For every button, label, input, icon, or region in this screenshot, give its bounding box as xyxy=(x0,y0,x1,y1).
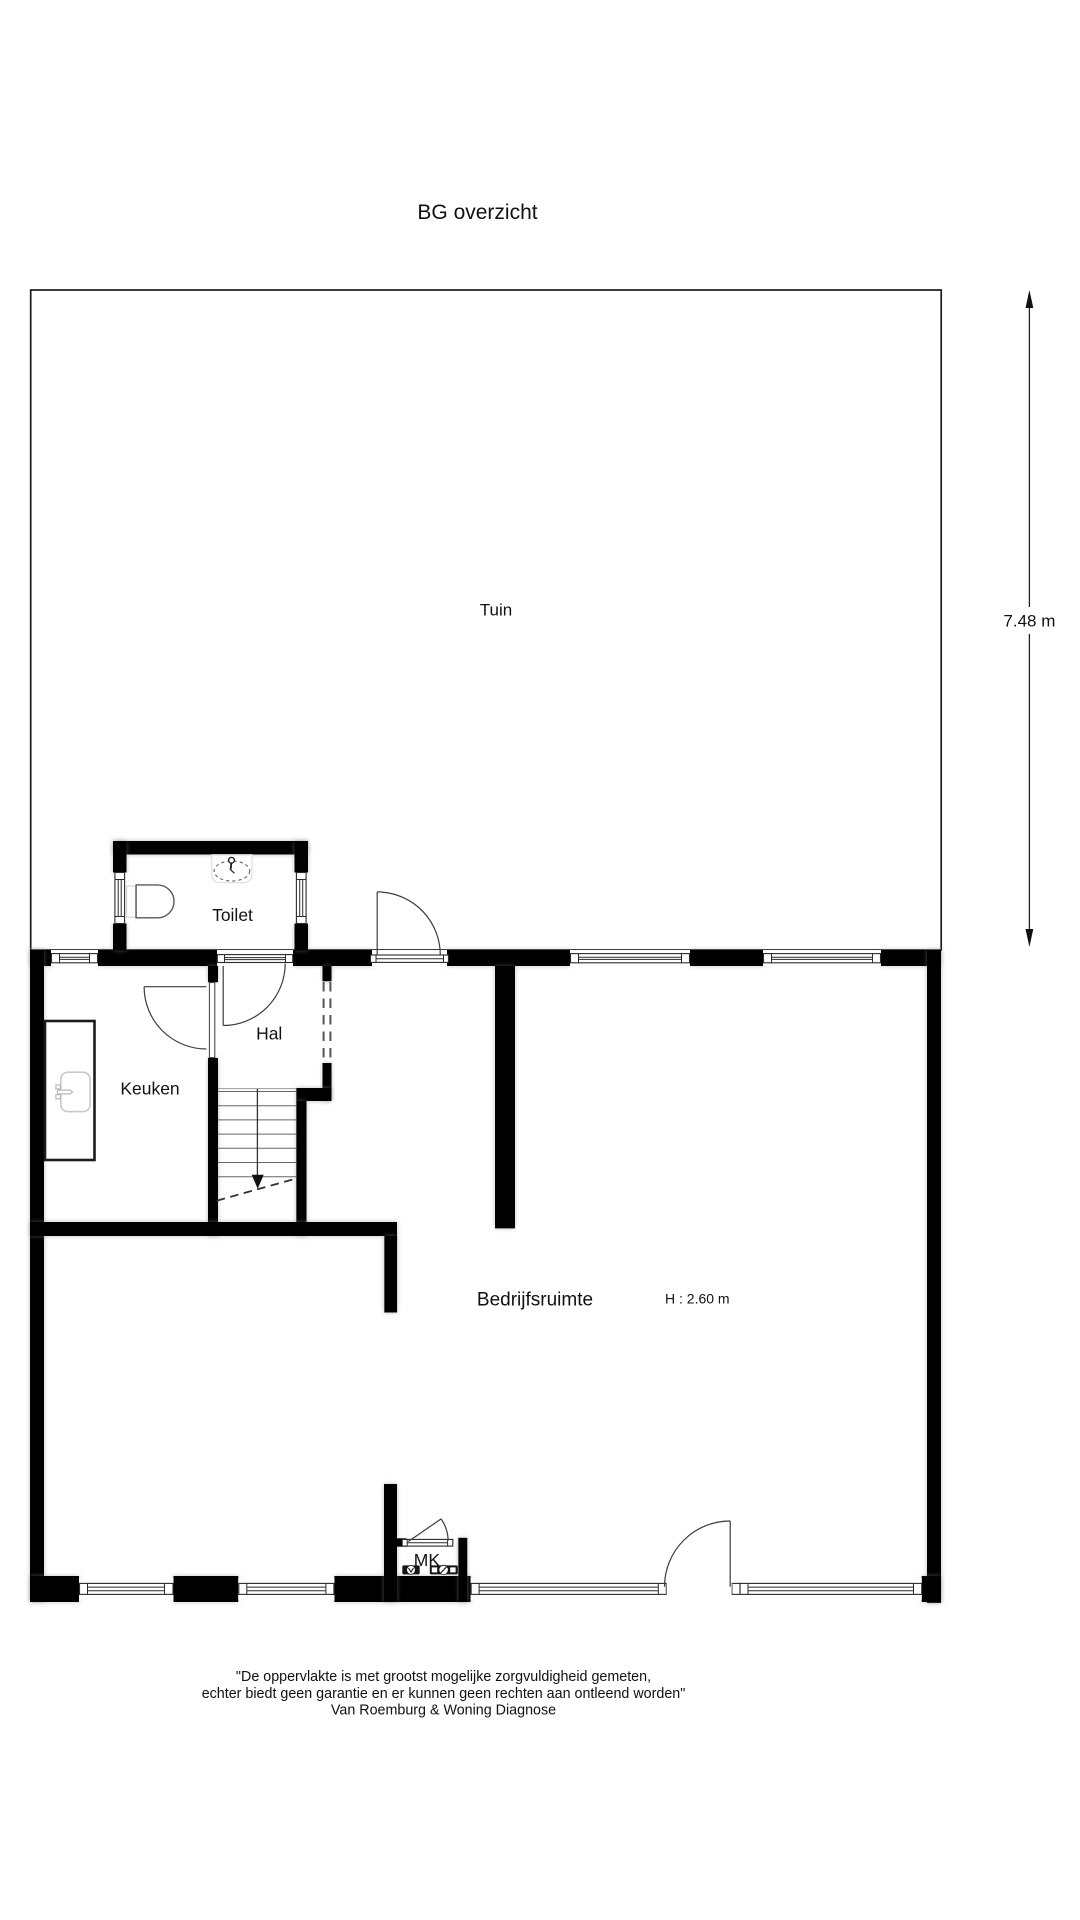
svg-text:Tuin: Tuin xyxy=(480,601,512,620)
svg-text:"De oppervlakte is met grootst: "De oppervlakte is met grootst mogelijke… xyxy=(236,1669,651,1685)
svg-text:BG overzicht: BG overzicht xyxy=(417,201,537,224)
svg-text:echter biedt geen garantie en: echter biedt geen garantie en er kunnen … xyxy=(202,1686,686,1702)
svg-text:Toilet: Toilet xyxy=(212,905,253,925)
svg-text:MK: MK xyxy=(414,1550,441,1570)
svg-text:7.48 m: 7.48 m xyxy=(1003,612,1055,631)
svg-text:Keuken: Keuken xyxy=(120,1079,179,1099)
svg-text:Hal: Hal xyxy=(256,1024,282,1044)
svg-text:H : 2.60 m: H : 2.60 m xyxy=(665,1291,730,1307)
svg-text:Van Roemburg & Woning Diagnose: Van Roemburg & Woning Diagnose xyxy=(331,1702,556,1718)
svg-text:Bedrijfsruimte: Bedrijfsruimte xyxy=(477,1289,593,1310)
